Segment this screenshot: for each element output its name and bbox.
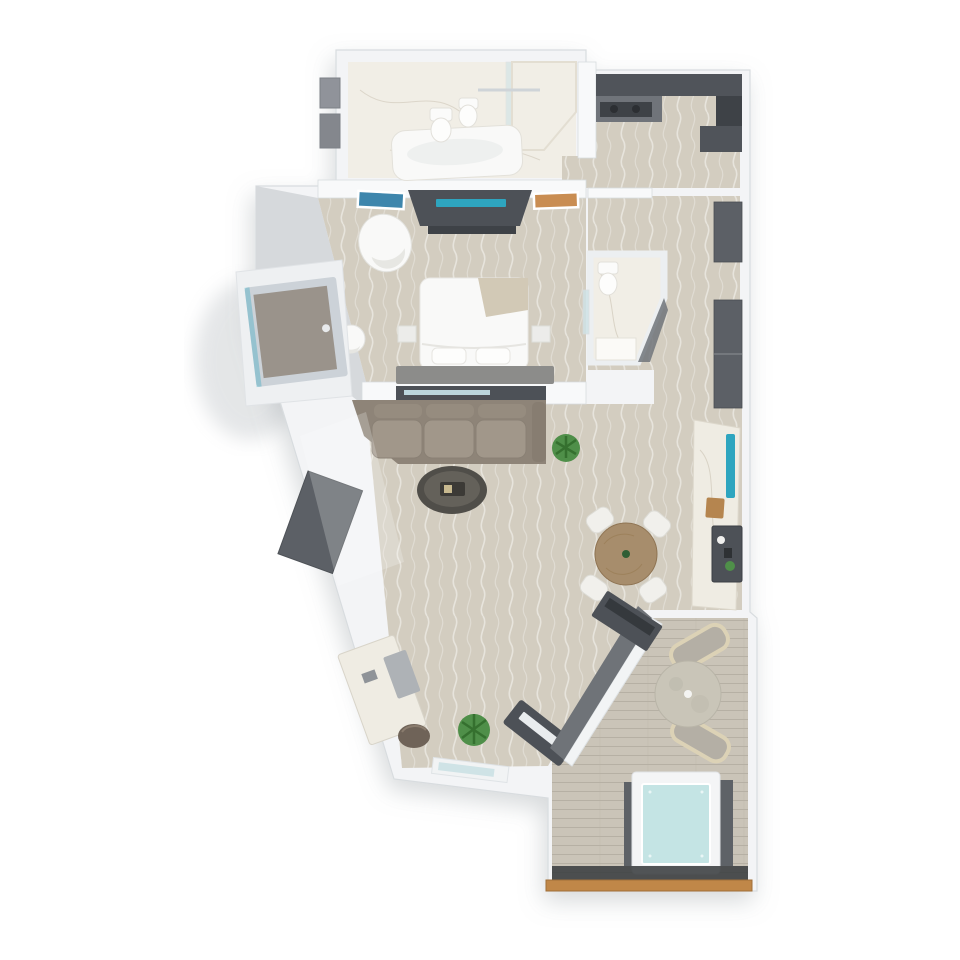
kitchen-island-unit [700,126,742,152]
wardrobes [714,202,742,408]
hallway-wall-stub [588,188,652,198]
bottle [724,548,732,558]
bidet [459,105,477,127]
potted-plant-entry [458,714,490,746]
wc-vanity [596,338,636,360]
jet [649,791,652,794]
burner [632,105,640,113]
hot-tub-water [642,784,710,864]
hot-tub-panel-right [720,780,733,866]
cooktop [600,102,652,117]
jet [701,855,704,858]
sofa-seat-cushion [476,420,526,458]
tv-shelf [428,226,516,234]
wall-art-right [534,192,578,209]
toilet [431,118,451,142]
nightstand-left [398,326,416,342]
wood-edge-trim [546,880,752,891]
sofa [352,400,546,464]
stone-mottle [691,695,709,713]
sofa-back-cushion [426,404,474,418]
living-console-screen [404,390,490,395]
floor-plan-render [0,0,960,960]
storage-shelf-lower [320,114,340,148]
tray-item [444,485,452,493]
sofa-seat-cushion [372,420,422,458]
jet [701,791,704,794]
jet [649,855,652,858]
entry [236,260,352,406]
sofa-armrest [532,402,546,462]
wc-toilet [599,273,617,295]
pillow-left [432,348,466,364]
coffee-table-tray [440,482,465,496]
stone-mottle [669,677,683,691]
vanity-stool [398,724,430,748]
table-centerpiece [622,550,630,558]
wc-door-glass [583,290,589,334]
kitchen-upper-cabinets [596,74,742,96]
headboard [396,366,554,384]
sofa-back-cushion [374,404,422,418]
entry-door [244,277,348,387]
wall-art-left [358,191,405,209]
tv-console [408,190,532,226]
folded-throw [478,278,528,317]
burner [610,105,618,113]
sofa-back-cushion [478,404,526,418]
coffee-table [417,466,487,514]
bar-counter-area [692,420,742,610]
sofa-seat-cushion [424,420,474,458]
cup [717,536,725,544]
entry-door-panel [253,286,337,378]
table-umbrella-hole [684,690,692,698]
minibar-plant [725,561,735,571]
nightstand-right [532,326,550,342]
floor-plan-stage [0,0,960,960]
storage-shelf-upper [320,78,340,108]
wc-toilet-tank [598,262,618,274]
wardrobe-closet-upper [714,202,742,262]
bath-kitchen-divider-wall [578,62,596,158]
hot-tub [624,772,733,874]
cutting-board [705,497,724,518]
teal-backsplash [726,434,735,498]
potted-plant-living [552,434,580,462]
pillow-right [476,348,510,364]
tv-screen [436,199,506,207]
